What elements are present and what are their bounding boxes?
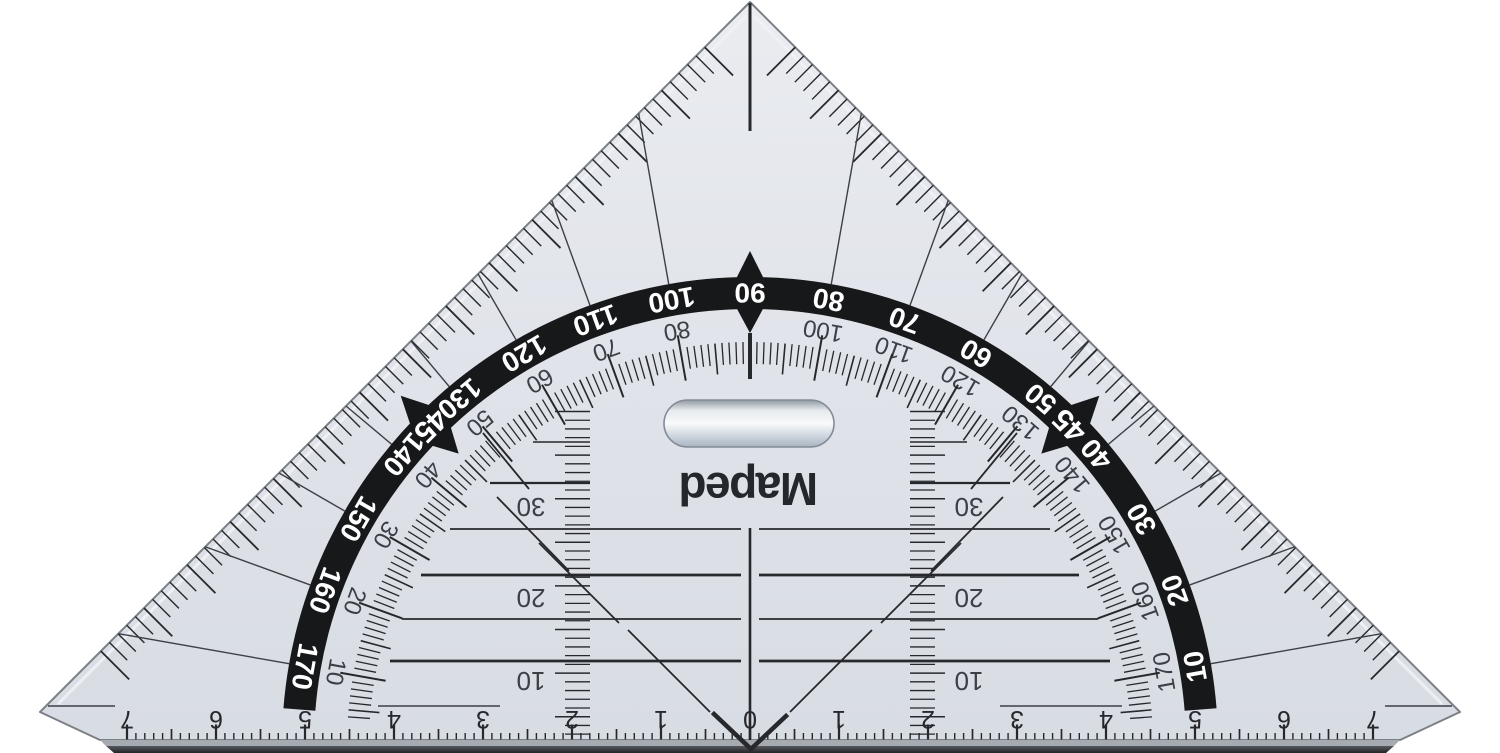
svg-text:Maped: Maped <box>680 463 818 515</box>
svg-text:20: 20 <box>955 583 984 613</box>
svg-text:20: 20 <box>517 583 546 613</box>
svg-text:6: 6 <box>1277 705 1291 733</box>
svg-text:10: 10 <box>1177 648 1213 684</box>
svg-text:10: 10 <box>517 666 546 696</box>
svg-text:1: 1 <box>832 705 846 733</box>
brand-logo: Maped <box>680 463 818 515</box>
svg-text:5: 5 <box>298 705 312 733</box>
svg-text:10: 10 <box>955 666 984 696</box>
handle-cutout <box>664 400 834 447</box>
svg-text:7: 7 <box>1366 705 1380 733</box>
svg-text:7: 7 <box>120 705 134 733</box>
svg-text:0: 0 <box>743 705 757 733</box>
geometry-triangle-svg: 1020304050607080901001101201301401501601… <box>0 0 1500 753</box>
svg-text:30: 30 <box>517 492 546 522</box>
svg-text:10: 10 <box>320 656 351 687</box>
svg-text:5: 5 <box>1188 705 1202 733</box>
svg-text:80: 80 <box>810 282 846 318</box>
svg-text:30: 30 <box>955 492 984 522</box>
svg-text:2: 2 <box>565 705 579 733</box>
svg-text:2: 2 <box>921 705 935 733</box>
svg-text:3: 3 <box>476 705 490 733</box>
svg-text:80: 80 <box>661 315 692 346</box>
svg-text:6: 6 <box>209 705 223 733</box>
svg-text:4: 4 <box>387 705 401 733</box>
set-square-product-image: 1020304050607080901001101201301401501601… <box>0 0 1500 753</box>
svg-text:1: 1 <box>654 705 668 733</box>
svg-text:90: 90 <box>734 278 765 309</box>
svg-text:3: 3 <box>1010 705 1024 733</box>
svg-text:4: 4 <box>1099 705 1113 733</box>
